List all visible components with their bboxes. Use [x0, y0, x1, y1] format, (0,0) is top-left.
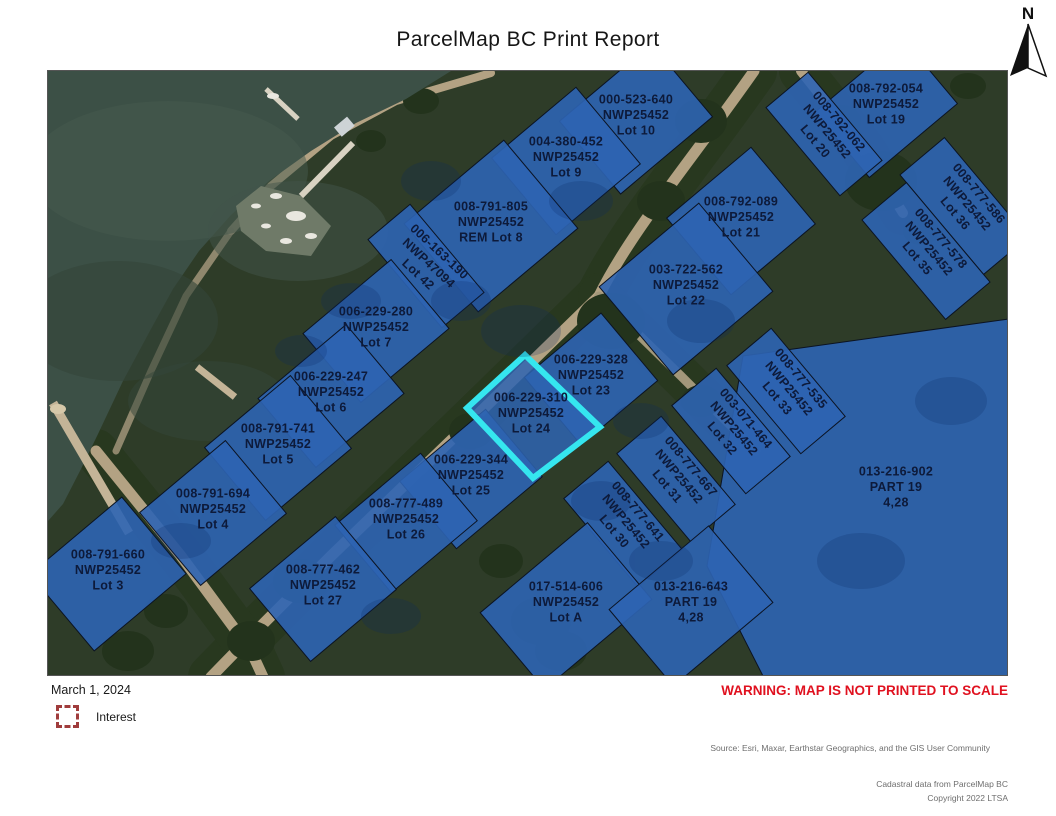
legend-label: Interest	[96, 710, 136, 724]
north-label: N	[1006, 6, 1050, 22]
north-arrow-icon	[1006, 22, 1050, 78]
map-canvas[interactable]: 013-216-902PART 194,28000-523-640NWP2545…	[48, 71, 1007, 675]
page-title: ParcelMap BC Print Report	[0, 28, 1056, 52]
map-date: March 1, 2024	[51, 683, 131, 697]
print-report-page: ParcelMap BC Print Report N	[0, 0, 1056, 816]
parcel-label-008-791-805: 008-791-805NWP25452REM Lot 8	[454, 200, 528, 245]
interest-parcel-icon	[56, 705, 79, 728]
map-viewport[interactable]: 013-216-902PART 194,28000-523-640NWP2545…	[47, 70, 1008, 676]
copyright: Cadastral data from ParcelMap BC Copyrig…	[876, 777, 1008, 805]
credit-line-1: Cadastral data from ParcelMap BC	[876, 777, 1008, 791]
imagery-source: Source: Esri, Maxar, Earthstar Geographi…	[710, 743, 990, 753]
legend: Interest	[56, 705, 136, 728]
north-arrow: N	[1006, 6, 1050, 83]
scale-warning: WARNING: MAP IS NOT PRINTED TO SCALE	[721, 683, 1008, 698]
credit-line-2: Copyright 2022 LTSA	[876, 791, 1008, 805]
